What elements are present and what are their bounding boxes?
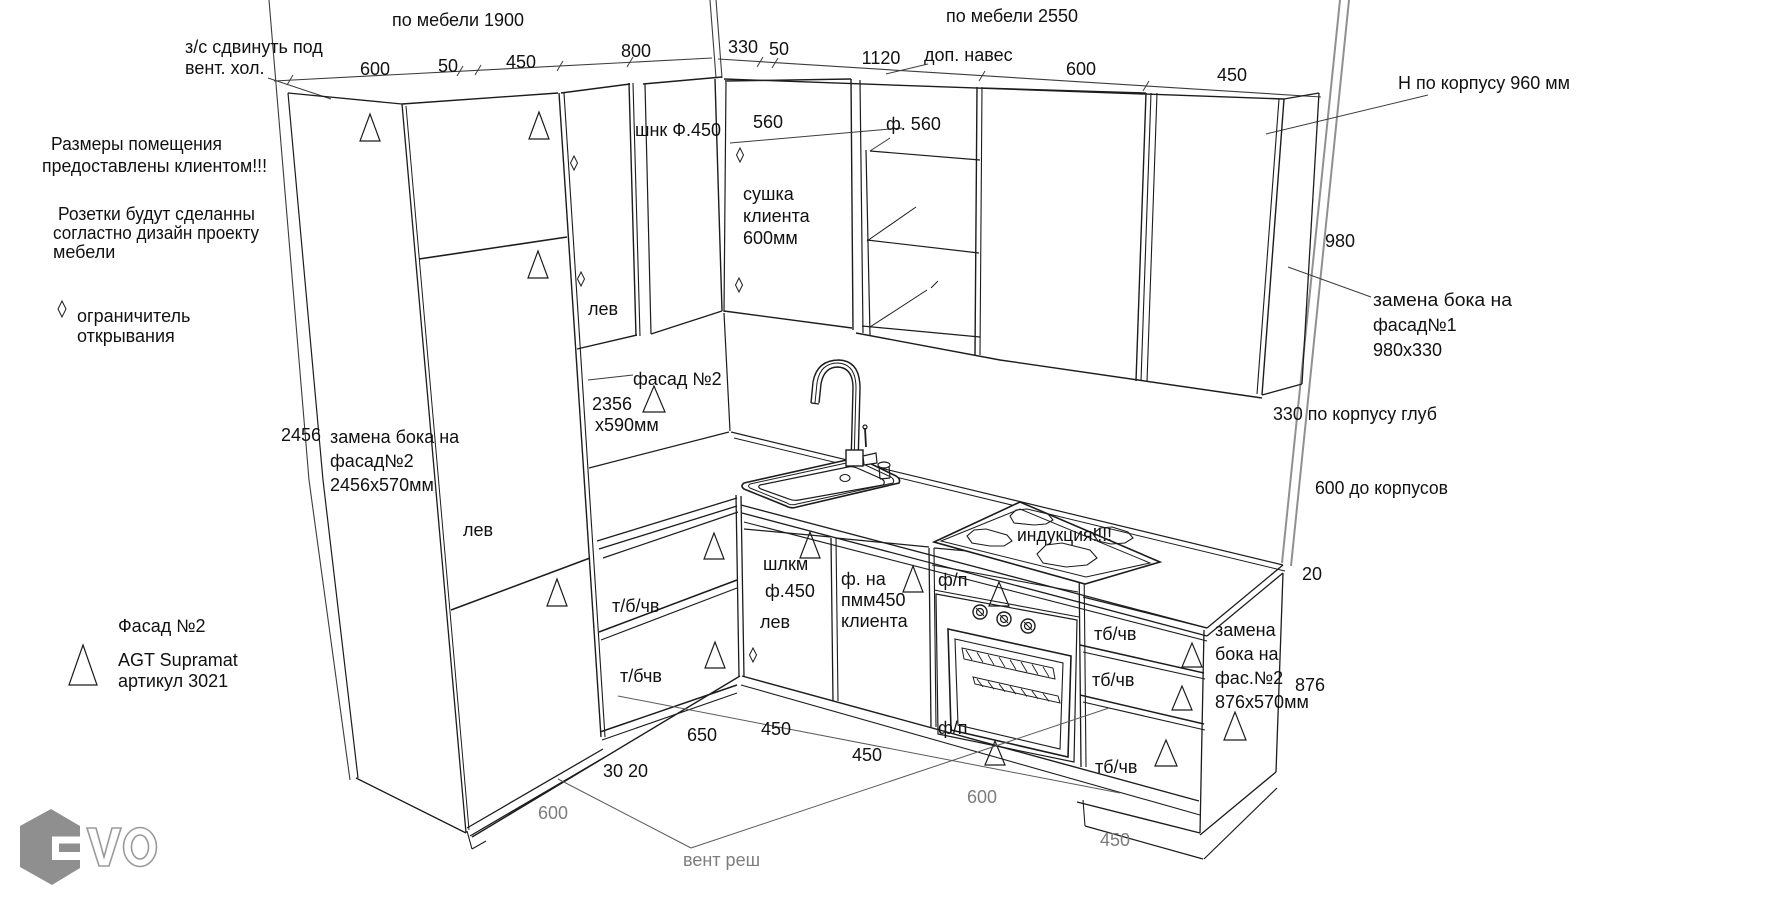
svg-text:AGT Supramat: AGT Supramat: [118, 650, 238, 670]
svg-text:фасад№2: фасад№2: [330, 451, 414, 471]
svg-text:вент. хол.: вент. хол.: [185, 58, 264, 78]
svg-text:450: 450: [1217, 65, 1247, 85]
svg-text:560: 560: [753, 112, 783, 132]
svg-text:x590мм: x590мм: [595, 415, 659, 435]
svg-text:индукция!!!!: индукция!!!!: [1017, 525, 1112, 545]
svg-text:артикул 3021: артикул 3021: [118, 671, 228, 691]
svg-text:по мебели 1900: по мебели 1900: [392, 10, 524, 30]
svg-text:мебели: мебели: [53, 242, 115, 262]
svg-text:20: 20: [1302, 564, 1322, 584]
svg-text:фасад№1: фасад№1: [1373, 315, 1457, 335]
svg-text:330 по корпусу глуб: 330 по корпусу глуб: [1273, 404, 1437, 424]
svg-text:Размеры помещения: Размеры помещения: [51, 134, 222, 154]
svg-text:600 до корпусов: 600 до корпусов: [1315, 478, 1448, 498]
svg-text:замена: замена: [1215, 620, 1277, 640]
svg-text:30 20: 30 20: [603, 761, 648, 781]
svg-text:з/с сдвинуть под: з/с сдвинуть под: [185, 37, 323, 57]
svg-text:1120: 1120: [862, 48, 901, 68]
svg-text:330: 330: [728, 37, 758, 57]
svg-text:600: 600: [538, 803, 568, 823]
svg-text:50: 50: [438, 56, 458, 76]
svg-text:600: 600: [1066, 59, 1096, 79]
svg-text:876x570мм: 876x570мм: [1215, 692, 1309, 712]
svg-text:предоставлены клиентом!!!: предоставлены клиентом!!!: [42, 156, 267, 176]
svg-text:открывания: открывания: [77, 326, 175, 346]
svg-text:сушка: сушка: [743, 184, 795, 204]
svg-text:Н по корпусу 960 мм: Н по корпусу 960 мм: [1398, 73, 1570, 93]
svg-text:600мм: 600мм: [743, 228, 798, 248]
svg-text:450: 450: [1100, 830, 1130, 850]
svg-text:фас.№2: фас.№2: [1215, 668, 1283, 688]
svg-text:ф.450: ф.450: [765, 581, 815, 601]
svg-text:ф/п: ф/п: [938, 570, 968, 590]
svg-text:Розетки будут сделанны: Розетки будут сделанны: [58, 204, 255, 224]
svg-text:650: 650: [687, 725, 717, 745]
svg-text:лев: лев: [588, 299, 618, 319]
svg-text:шнк Ф.450: шнк Ф.450: [635, 120, 721, 140]
svg-text:т/бчв: т/бчв: [620, 666, 662, 686]
svg-text:600: 600: [360, 59, 390, 79]
svg-text:2356: 2356: [592, 394, 632, 414]
svg-text:ф/п: ф/п: [938, 718, 968, 738]
svg-text:2456: 2456: [281, 425, 321, 445]
svg-text:замена бока на: замена бока на: [330, 427, 460, 447]
svg-text:980x330: 980x330: [1373, 340, 1442, 360]
svg-text:клиента: клиента: [743, 206, 811, 226]
svg-text:ф. на: ф. на: [841, 569, 887, 589]
svg-text:тб/чв: тб/чв: [1094, 624, 1137, 644]
svg-text:доп. навес: доп. навес: [924, 45, 1013, 65]
svg-text:пмм450: пмм450: [841, 590, 906, 610]
svg-text:т/б/чв: т/б/чв: [612, 596, 660, 616]
svg-text:бока на: бока на: [1215, 644, 1280, 664]
svg-text:2456x570мм: 2456x570мм: [330, 475, 434, 495]
svg-text:замена бока на: замена бока на: [1373, 290, 1513, 310]
svg-text:лев: лев: [760, 612, 790, 632]
svg-text:600: 600: [967, 787, 997, 807]
svg-text:тб/чв: тб/чв: [1092, 670, 1135, 690]
svg-text:по мебели 2550: по мебели 2550: [946, 6, 1078, 26]
svg-text:450: 450: [506, 52, 536, 72]
svg-text:согластно дизайн проекту: согластно дизайн проекту: [53, 223, 259, 243]
svg-text:вент реш: вент реш: [683, 850, 760, 870]
svg-text:клиента: клиента: [841, 611, 909, 631]
svg-text:Фасад №2: Фасад №2: [118, 616, 206, 636]
svg-text:лев: лев: [463, 520, 493, 540]
svg-text:50: 50: [769, 39, 789, 59]
svg-text:800: 800: [621, 41, 651, 61]
svg-text:450: 450: [761, 719, 791, 739]
svg-text:ограничитель: ограничитель: [77, 306, 190, 326]
svg-text:980: 980: [1325, 231, 1355, 251]
svg-text:ф. 560: ф. 560: [886, 114, 941, 134]
svg-text:450: 450: [852, 745, 882, 765]
svg-text:шлкм: шлкм: [763, 554, 808, 574]
svg-text:фасад №2: фасад №2: [633, 369, 722, 389]
